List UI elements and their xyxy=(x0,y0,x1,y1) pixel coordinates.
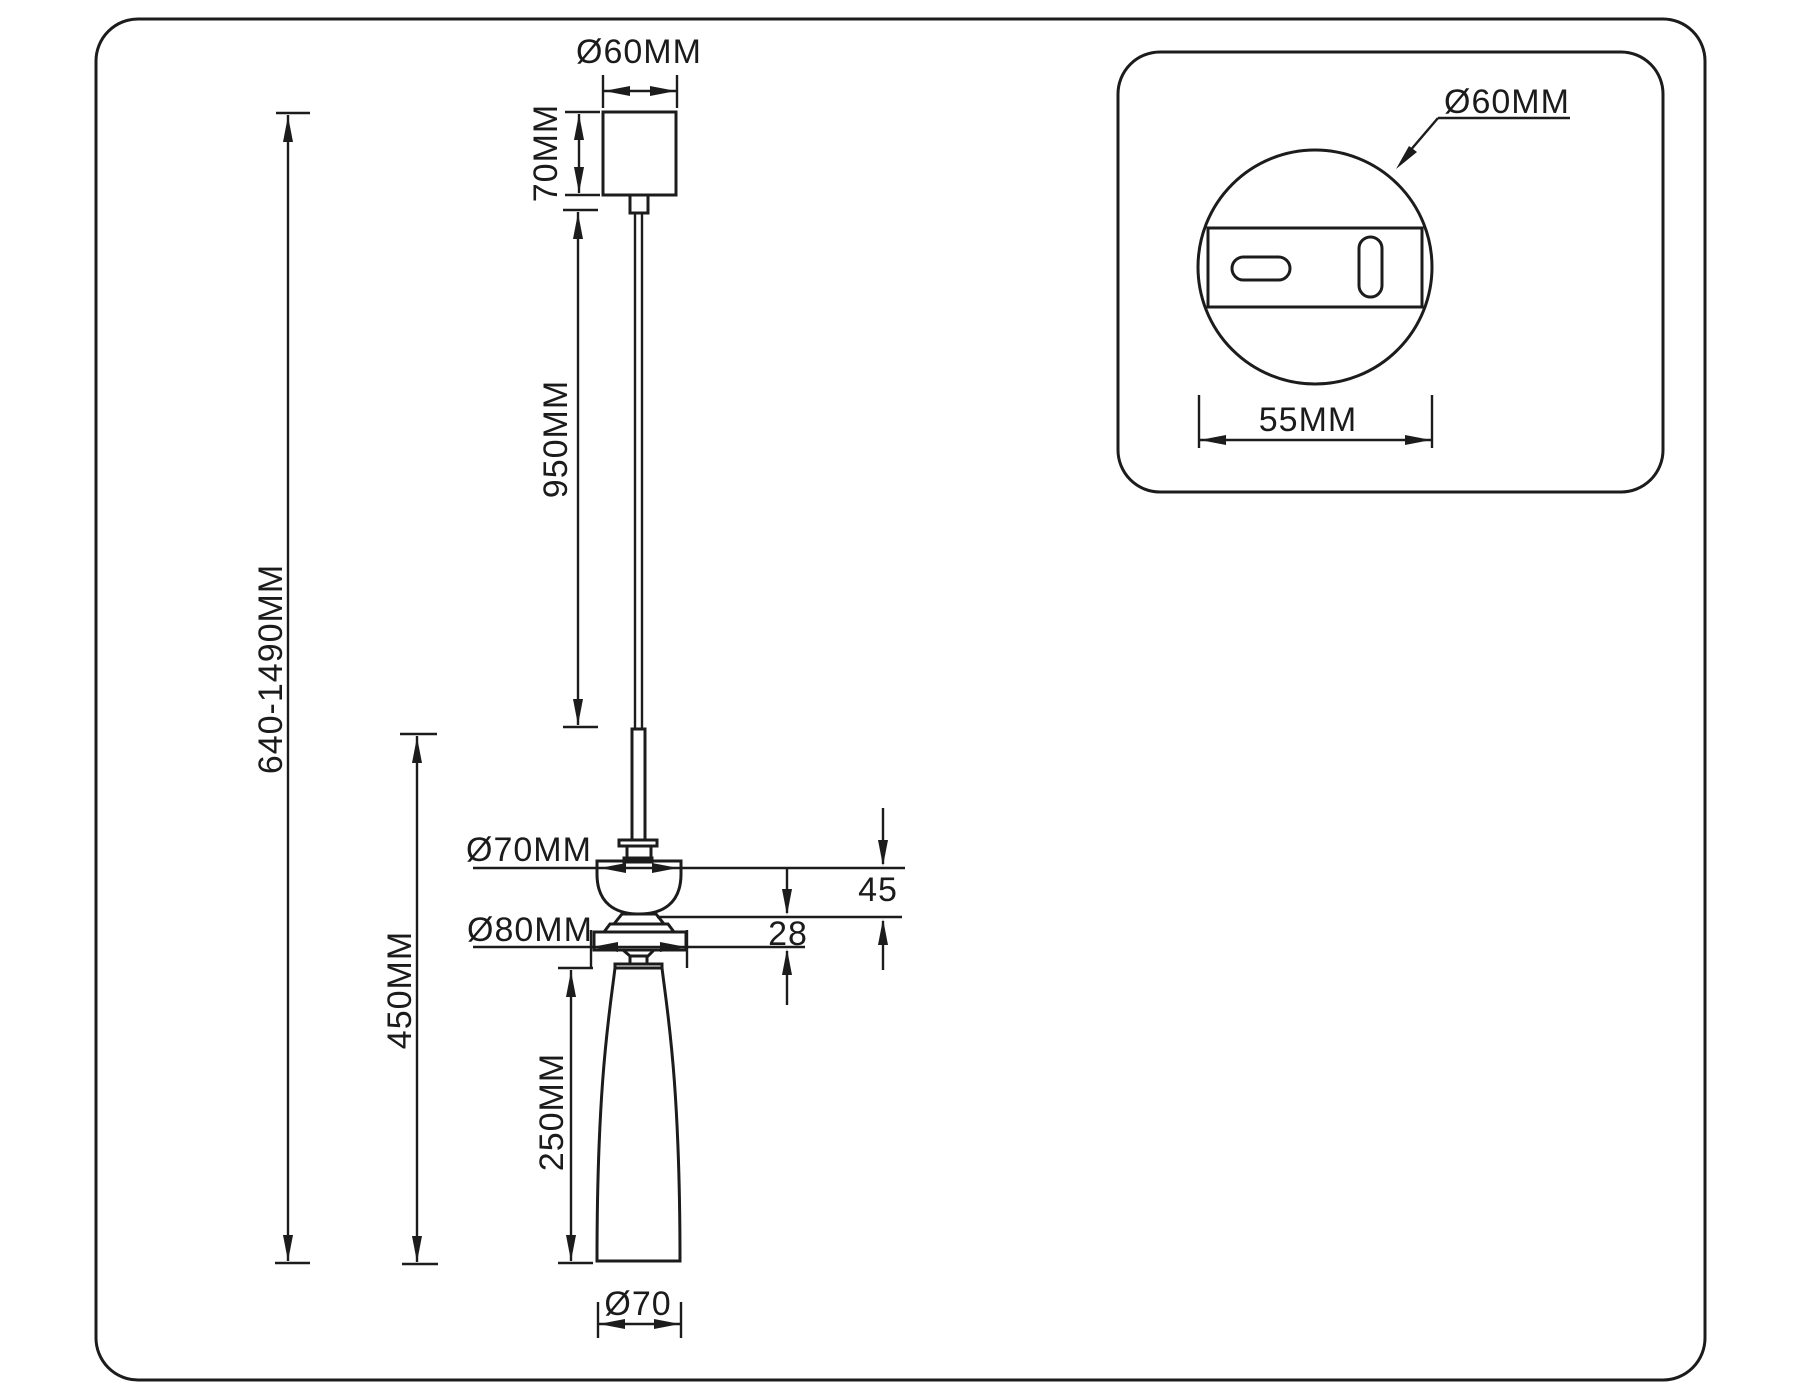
label-inset-plate-width: 55MM xyxy=(1259,403,1357,437)
label-disc-diameter: Ø80MM xyxy=(467,913,593,947)
canopy-outline xyxy=(603,112,676,195)
label-canopy-height: 70MM xyxy=(529,104,563,202)
sheet-border xyxy=(96,19,1705,1380)
inset-slot-vertical xyxy=(1359,237,1382,297)
dim-canopy-height xyxy=(565,112,600,195)
label-disc-depth: 28 xyxy=(768,917,808,951)
label-overall-height: 640-1490MM xyxy=(254,564,288,774)
label-holder-depth: 45 xyxy=(858,873,898,907)
pendant-lamp-outline xyxy=(594,112,686,1261)
drawing-sheet: Ø60MM 70MM 950MM 640-1490MM 450MM 250MM … xyxy=(0,0,1800,1400)
stem-rod xyxy=(632,729,645,840)
label-shade-height: 250MM xyxy=(535,1053,569,1171)
dim-canopy-diameter xyxy=(603,75,677,108)
dimension-linework xyxy=(275,75,905,1338)
glass-shade xyxy=(597,968,680,1261)
inset-slot-horizontal xyxy=(1232,257,1290,280)
label-cable-length: 950MM xyxy=(539,380,573,498)
inset-detail xyxy=(1118,52,1663,492)
label-fixture-height: 450MM xyxy=(383,931,417,1049)
label-holder-diameter: Ø70MM xyxy=(466,833,592,867)
stem-neck xyxy=(627,846,651,858)
label-inset-canopy-diameter: Ø60MM xyxy=(1444,85,1570,119)
canopy-connector xyxy=(630,195,648,213)
inset-mounting-plate xyxy=(1208,228,1422,307)
label-canopy-diameter: Ø60MM xyxy=(576,35,702,69)
label-shade-bottom-diameter: Ø70 xyxy=(604,1287,671,1321)
inset-leader xyxy=(1396,118,1570,169)
suspension-cable xyxy=(635,213,642,729)
